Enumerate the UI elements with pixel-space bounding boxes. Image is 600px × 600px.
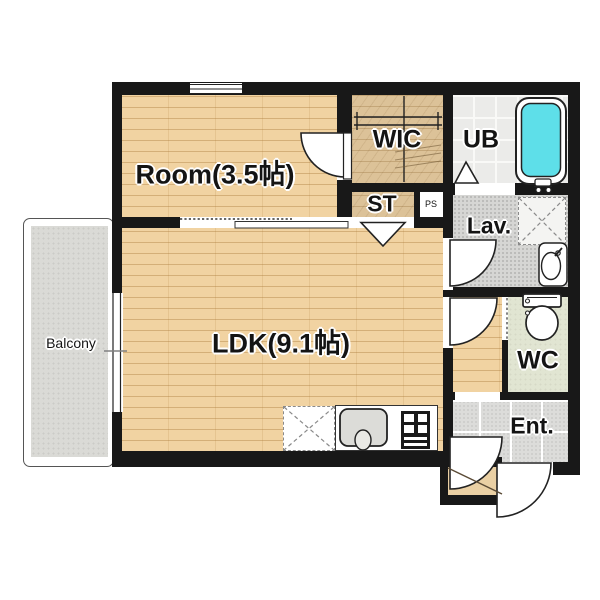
wall-bottom-ent-l <box>445 457 502 467</box>
washer-space <box>518 197 566 245</box>
st-opening <box>352 217 414 228</box>
st-label: ST <box>367 191 396 218</box>
wall-top <box>112 82 580 95</box>
doorway-corridor <box>443 297 453 348</box>
doorway-hall-ent <box>455 392 500 400</box>
kitchen-counter <box>335 405 438 451</box>
wall-bottom-main <box>112 451 450 467</box>
wc-floor <box>508 297 568 392</box>
ldk-label: LDK(9.1帖) <box>212 322 350 361</box>
balcony-label: Balcony <box>46 335 96 351</box>
wall-bottom-ent-r <box>553 462 580 475</box>
ent-label: Ent. <box>510 413 553 440</box>
floor-plan: Room(3.5帖) LDK(9.1帖) WIC UB ST PS Lav. W… <box>0 0 600 600</box>
sliding-door-zone <box>180 217 352 228</box>
window-balcony <box>111 293 123 412</box>
wc-label: WC <box>517 347 559 376</box>
doorway-lav <box>443 238 453 290</box>
room-label: Room(3.5帖) <box>135 153 294 192</box>
entry-step <box>448 467 502 495</box>
corridor-floor <box>453 297 502 392</box>
wall-right <box>568 82 580 475</box>
wall-under-ps <box>414 217 453 228</box>
window-top <box>190 83 242 94</box>
lav-label: Lav. <box>467 213 511 240</box>
doorway-ub <box>455 183 515 195</box>
ps-label: PS <box>425 199 437 209</box>
wall-step-south <box>440 495 505 505</box>
doorway-room-wic <box>337 133 352 180</box>
wall-room-ldk <box>112 217 180 228</box>
wall-lav-wc <box>443 287 580 297</box>
refrigerator-space <box>283 406 335 451</box>
wic-label: WIC <box>373 126 422 155</box>
doorway-wc <box>502 297 508 340</box>
doorway-front <box>502 462 553 475</box>
ub-label: UB <box>463 126 499 155</box>
